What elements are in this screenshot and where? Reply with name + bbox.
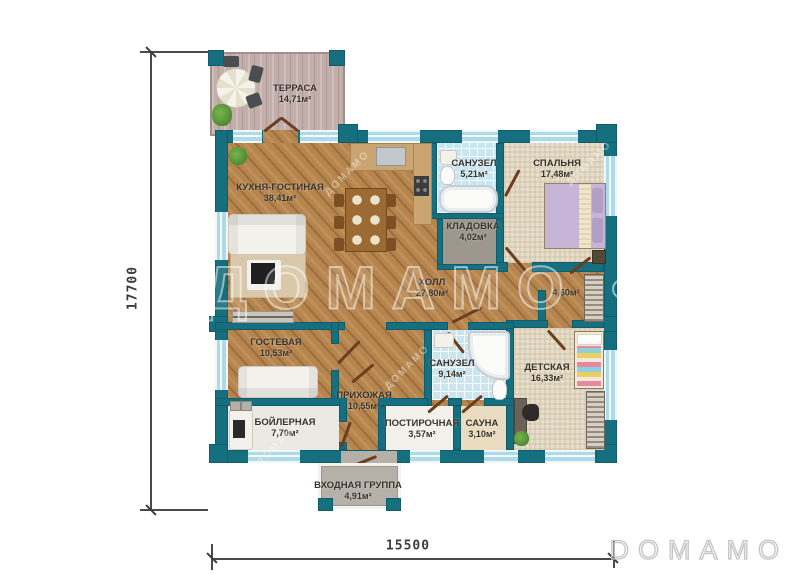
kids-wardrobe xyxy=(586,391,605,449)
floor-plan-canvas: 17700 15500 xyxy=(0,0,800,580)
terrace-chair xyxy=(223,56,239,67)
interior-wall xyxy=(448,398,462,406)
dining-chair xyxy=(386,238,396,251)
bed-double xyxy=(544,183,606,249)
guest-sofa xyxy=(238,366,318,398)
lowboard xyxy=(232,311,294,323)
dining-chair xyxy=(386,194,396,207)
boiler-door xyxy=(233,420,245,438)
dimension-width-label: 15500 xyxy=(386,539,430,554)
kitchen-sink xyxy=(376,147,406,166)
wall-pilaster xyxy=(338,124,358,143)
stove xyxy=(414,176,429,196)
tv xyxy=(251,263,275,284)
room-label-storage: КЛАДОВКА 4,02м² xyxy=(446,221,499,243)
room-label-entrance: ВХОДНАЯ ГРУППА 4,91м² xyxy=(314,480,402,502)
room-label-guest-room: ГОСТЕВАЯ 10,53м² xyxy=(250,337,302,359)
interior-wall xyxy=(386,322,448,330)
room-label-sauna: САУНА 3,10м² xyxy=(466,418,499,440)
room-label-bathroom-1: САНУЗЕЛ 5,21м² xyxy=(451,158,496,180)
room-label-bathroom-2: САНУЗЕЛ 9,14м² xyxy=(429,358,474,380)
exterior-wall-left xyxy=(215,130,228,463)
terrace-door-opening xyxy=(263,130,298,143)
window xyxy=(410,450,440,463)
dining-table xyxy=(345,188,387,252)
bed-pillow xyxy=(592,218,603,243)
nightstand xyxy=(592,250,606,264)
dining-chair xyxy=(334,194,344,207)
window xyxy=(530,130,578,143)
interior-wall xyxy=(538,290,546,322)
room-label-boiler-room: БОЙЛЕРНАЯ 7,70м² xyxy=(255,417,316,439)
domamo-logo: DOMAMO xyxy=(610,535,789,566)
dimension-height-label: 17700 xyxy=(126,266,141,310)
kids-plant xyxy=(514,431,529,446)
interior-wall xyxy=(437,219,443,270)
room-label-entry-hall: ПРИХОЖАЯ 10,55м² xyxy=(336,390,392,412)
room-label-laundry: ПОСТИРОЧНАЯ 3,57м² xyxy=(385,418,459,440)
bathroom-sink xyxy=(434,333,454,348)
interior-wall xyxy=(437,264,504,270)
dining-chair xyxy=(334,216,344,229)
terrace-post xyxy=(329,50,345,66)
toilet xyxy=(492,379,507,400)
wall-cabinet xyxy=(241,401,252,411)
room-label-bedroom: СПАЛЬНЯ 17,48м² xyxy=(533,158,581,180)
window xyxy=(484,450,518,463)
kids-bed-pillow xyxy=(577,334,602,345)
room-label-terrace: ТЕРРАСА 14,71м² xyxy=(273,83,317,105)
room-label-wardrobe: 4,60м² xyxy=(552,288,579,299)
window xyxy=(300,130,338,143)
terrace-post xyxy=(208,50,224,66)
room-label-kids-room: ДЕТСКАЯ 16,33м² xyxy=(524,362,569,384)
window xyxy=(248,450,300,463)
kids-bed-blanket xyxy=(577,346,601,386)
window xyxy=(462,130,498,143)
interior-wall xyxy=(215,322,345,330)
dimension-line-horizontal xyxy=(212,558,614,560)
window xyxy=(215,212,228,260)
bed-runner xyxy=(579,184,591,248)
bathtub xyxy=(439,185,498,213)
wall-pilaster xyxy=(596,124,617,143)
wall-cabinet xyxy=(230,401,241,411)
dimension-line-vertical xyxy=(150,52,152,510)
interior-wall xyxy=(496,262,508,272)
kitchen-plant xyxy=(229,147,247,165)
window xyxy=(545,450,595,463)
window xyxy=(233,130,262,143)
bed-pillow xyxy=(592,188,603,213)
dining-chair xyxy=(334,238,344,251)
interior-wall xyxy=(331,322,339,344)
wardrobe-cabinet xyxy=(584,274,604,322)
sofa xyxy=(228,214,306,255)
window xyxy=(604,350,617,420)
dining-chair xyxy=(386,216,396,229)
wall-pilaster xyxy=(209,444,228,463)
kids-bed xyxy=(574,331,604,389)
room-label-kitchen-living: КУХНЯ-ГОСТИНАЯ 38,41м² xyxy=(236,182,324,204)
desk-chair xyxy=(522,404,539,421)
window xyxy=(215,340,228,390)
terrace-plant xyxy=(212,104,232,126)
interior-wall xyxy=(496,143,504,270)
window xyxy=(368,130,420,143)
room-label-hall: ХОЛЛ 27,80м² xyxy=(416,277,448,299)
